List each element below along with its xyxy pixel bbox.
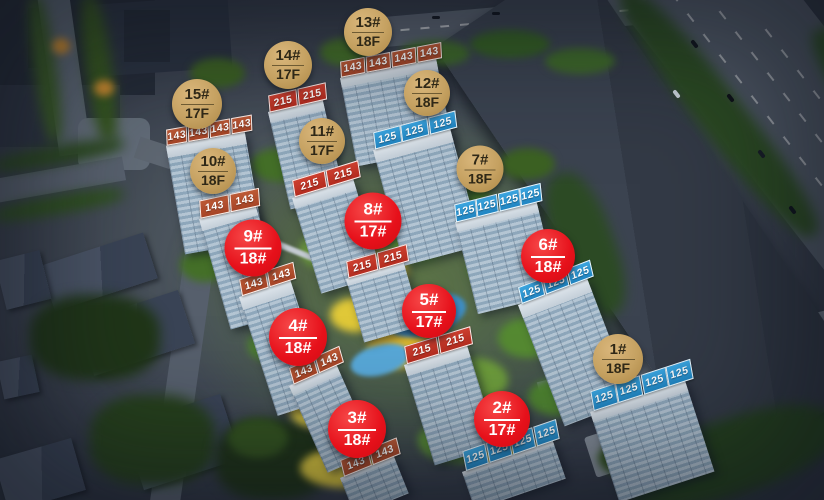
building-floors: 18F — [415, 95, 439, 110]
building-floors: 18F — [201, 173, 225, 188]
tree-cluster — [94, 80, 114, 96]
building-floors: 17# — [416, 315, 443, 332]
car — [492, 12, 500, 15]
building-12-marker[interactable]: 12# 18F — [404, 70, 450, 116]
building-number: 2# — [493, 399, 512, 417]
building-6-marker[interactable]: 6# 18# — [521, 229, 575, 283]
building-floors: 18# — [344, 433, 371, 450]
tree-cluster — [470, 30, 550, 58]
building-10-marker[interactable]: 10# 18F — [190, 148, 236, 194]
building-number: 13# — [355, 15, 380, 31]
building-number: 15# — [184, 87, 209, 103]
tree-cluster — [545, 48, 615, 74]
marker-divider — [338, 429, 375, 431]
tree-cluster — [500, 148, 555, 180]
marker-divider — [355, 221, 391, 223]
building-floors: 18F — [356, 34, 380, 49]
tree-grove — [30, 295, 160, 380]
building-number: 4# — [289, 317, 308, 335]
building-number: 3# — [348, 409, 367, 427]
unit-size-label: 143 — [231, 115, 252, 135]
building-floors: 17# — [360, 225, 387, 242]
building-number: 5# — [420, 291, 439, 309]
building-number: 9# — [244, 228, 263, 246]
building-1-marker[interactable]: 1# 18F — [593, 334, 643, 384]
marker-divider — [484, 419, 520, 421]
aerial-site-plan: 125 125 125 125 125 125 125 125 143 143 … — [0, 0, 824, 500]
marker-divider — [531, 256, 566, 258]
tree-cluster — [52, 38, 70, 54]
building-number: 7# — [472, 152, 489, 168]
building-2-marker[interactable]: 2# 17# — [474, 391, 530, 447]
building-15-marker[interactable]: 15# 17F — [172, 79, 222, 129]
building-4-marker[interactable]: 4# 18# — [269, 308, 327, 366]
building-13-marker[interactable]: 13# 18F — [344, 8, 392, 56]
marker-divider — [279, 337, 316, 339]
building-floors: 17# — [489, 423, 516, 440]
building-number: 6# — [539, 236, 558, 254]
building-floors: 18# — [285, 341, 312, 358]
building-5-marker[interactable]: 5# 17# — [402, 284, 456, 338]
building-floors: 18# — [535, 260, 562, 277]
building-floors: 18F — [468, 171, 492, 186]
building-14-marker[interactable]: 14# 17F — [264, 41, 312, 89]
village-house — [0, 438, 86, 500]
building-floors: 18# — [240, 252, 267, 269]
building-number: 11# — [310, 124, 334, 140]
marker-divider — [235, 248, 271, 250]
building-9-marker[interactable]: 9# 18# — [225, 220, 282, 277]
building-3-marker[interactable]: 3# 18# — [328, 400, 386, 458]
building-floors: 17F — [310, 143, 334, 158]
car — [432, 16, 440, 19]
building-number: 8# — [364, 201, 383, 219]
building-floors: 17F — [185, 106, 209, 121]
building-number: 1# — [610, 342, 627, 358]
village-house — [0, 355, 40, 400]
building-7-marker[interactable]: 7# 18F — [457, 146, 504, 193]
city-tower-roof — [124, 10, 170, 62]
building-number: 10# — [200, 154, 225, 170]
marker-divider — [412, 311, 447, 313]
building-8-marker[interactable]: 8# 17# — [345, 193, 402, 250]
building-floors: 17F — [276, 67, 300, 82]
tree-grove — [90, 395, 215, 485]
building-floors: 18F — [606, 361, 630, 376]
tree-cluster — [228, 418, 288, 458]
village-house — [0, 250, 51, 310]
building-11-marker[interactable]: 11# 17F — [299, 118, 345, 164]
building-number: 14# — [275, 48, 300, 64]
building-number: 12# — [414, 76, 439, 92]
